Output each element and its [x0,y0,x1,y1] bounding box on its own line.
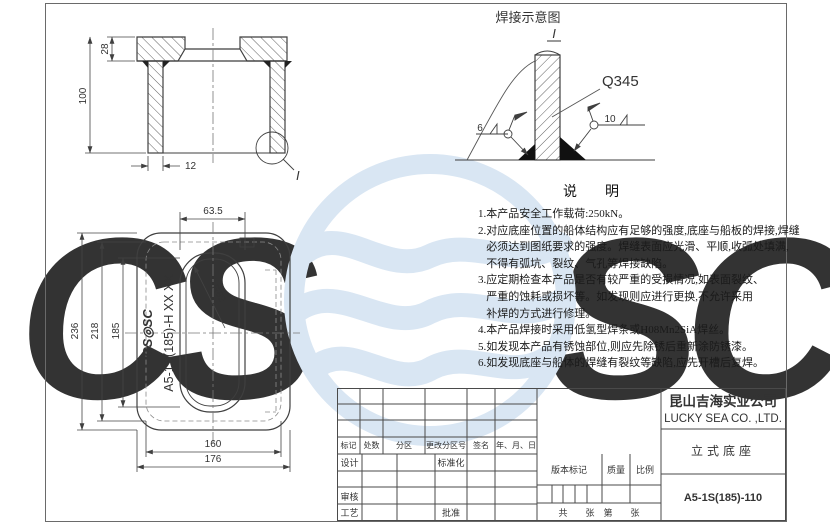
product-name: 立式底座 [691,443,755,458]
note-line: 不得有弧坑、裂纹、气孔等焊接缺陷。 [478,256,790,273]
notes-section: 说 明 1.本产品安全工作载荷:250kN。2.对应底座位置的船体结构应有足够的… [478,181,790,372]
weld-diagram-title: 焊接示意图 [495,10,560,25]
part-code-text: A5-1S(185)-H XX XX [162,274,176,392]
weld-detail-label: I [552,26,556,41]
weight-label: 质量 [607,464,625,475]
dim-slot-width: 63.5 [203,206,223,217]
dim-total-height: 100 [78,87,89,104]
title-block: 标记 处数 分区 更改分区号 签名 年、月、日 设计 标准化 审核 工艺 批准 … [337,388,786,521]
role-approve-label: 批准 [442,507,460,518]
detail-label: I [296,168,300,183]
dim-mid-height: 218 [90,322,101,339]
weld-size-left: 6 [477,123,483,134]
note-line: 补焊的方式进行修理。 [478,306,790,323]
cssc-logo-text: CS◎SC [140,309,155,357]
weld-symbol-left [476,112,528,155]
role-standardize-label: 标准化 [437,457,464,468]
note-line: 6.如发现底座与船体的焊缝有裂纹等缺陷,应先开槽后复焊。 [478,355,790,372]
sheet-count-label: 共 张 第 张 [558,507,639,518]
dim-outer-height: 236 [70,322,81,339]
rev-change-no-label: 更改分区号 [426,440,466,450]
leg-weld-fillets [142,61,292,68]
scale-label: 比例 [636,464,654,475]
section-view-drawing: 28 100 12 I [45,10,375,195]
role-process-label: 工艺 [340,508,358,518]
note-line: 严重的蚀耗或损坏等。如发现则应进行更换,不允许采用 [478,289,790,306]
company-name-en: LUCKY SEA CO. ,LTD. [664,413,782,425]
role-design-label: 设计 [340,457,358,468]
company-name-cn: 昆山吉海实业公司 [669,393,777,409]
left-fillet-weld [518,144,535,160]
note-line: 必须达到图纸要求的强度。焊缝表面应光滑、平顺,收弧处填满, [478,239,790,256]
dim-wall-thickness: 12 [185,161,197,172]
rev-zone-label: 分区 [396,441,412,450]
note-line: 1.本产品安全工作载荷:250kN。 [478,206,790,223]
weld-diagram-drawing: 焊接示意图 I 6 10 [440,8,790,183]
dim-inner-width: 160 [205,439,222,450]
rev-count-label: 处数 [364,440,380,450]
notes-list: 1.本产品安全工作载荷:250kN。2.对应底座位置的船体结构应有足够的强度,底… [478,206,790,372]
plan-view-drawing: R62 CS◎SC A5-1S(185)-H XX XX 63.5 236 21… [45,200,375,485]
material-label: Q345 [602,73,639,90]
rev-mark-label: 标记 [341,440,357,450]
drawing-sheet: CS SC [0,0,830,530]
note-line: 3.应定期检查本产品是否有较严重的受损情况,如表面裂纹、 [478,272,790,289]
notes-title: 说 明 [478,181,704,201]
version-mark-label: 版本标记 [551,464,587,475]
weld-size-right: 10 [604,114,616,125]
dim-inner-height: 185 [111,322,122,339]
note-line: 5.如发现本产品有锈蚀部位,则应先除锈后重新涂防锈漆。 [478,339,790,356]
note-line: 4.本产品焊接时采用低氢型焊条或H08Mn2SiA焊丝。 [478,322,790,339]
rev-date-label: 年、月、日 [496,440,536,450]
dim-flange-thickness: 28 [100,43,111,55]
weld-symbol-right [574,103,645,151]
dim-outer-width: 176 [205,454,222,465]
drawing-number: A5-1S(185)-110 [684,492,762,504]
rev-sign-label: 签名 [473,440,489,450]
role-check-label: 审核 [340,491,358,502]
note-line: 2.对应底座位置的船体结构应有足够的强度,底座与船板的焊接,焊缝 [478,223,790,240]
